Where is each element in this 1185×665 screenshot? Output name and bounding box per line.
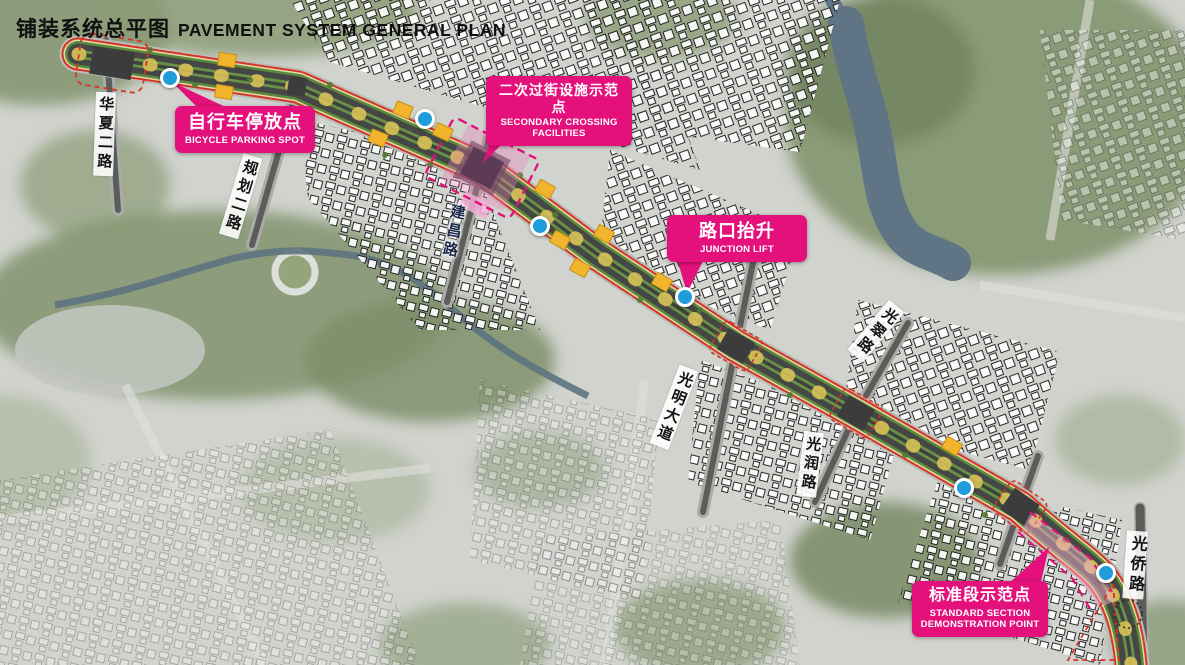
page-title-en: PAVEMENT SYSTEM GENERAL PLAN — [178, 20, 506, 40]
callout-secondary-crossing-zh: 二次过街设施示范点 — [492, 82, 626, 115]
callout-bicycle-parking-en: BICYCLE PARKING SPOT — [181, 135, 309, 146]
callout-standard-section: 标准段示范点 STANDARD SECTION DEMONSTRATION PO… — [912, 581, 1048, 637]
callout-junction-lift-en: JUNCTION LIFT — [673, 244, 801, 255]
callout-secondary-crossing-en: SECONDARY CROSSING FACILITIES — [492, 117, 626, 139]
pavement-plan-map: 华夏二路 规划二路 建昌路 光明大道 光翠路 光润路 光侨路 铺装系统总平图PA… — [0, 0, 1185, 665]
road-label-huaxia-2: 华夏二路 — [93, 92, 116, 177]
page-title-zh: 铺装系统总平图 — [16, 18, 170, 41]
callout-junction-lift: 路口抬升 JUNCTION LIFT — [667, 215, 807, 262]
page-title: 铺装系统总平图PAVEMENT SYSTEM GENERAL PLAN — [16, 13, 506, 43]
callout-standard-section-en: STANDARD SECTION DEMONSTRATION POINT — [918, 608, 1042, 630]
callout-bicycle-parking: 自行车停放点 BICYCLE PARKING SPOT — [175, 106, 315, 153]
callout-junction-lift-zh: 路口抬升 — [673, 221, 801, 242]
callout-bicycle-parking-zh: 自行车停放点 — [181, 112, 309, 133]
callout-secondary-crossing: 二次过街设施示范点 SECONDARY CROSSING FACILITIES — [486, 76, 632, 146]
callout-standard-section-zh: 标准段示范点 — [918, 587, 1042, 606]
